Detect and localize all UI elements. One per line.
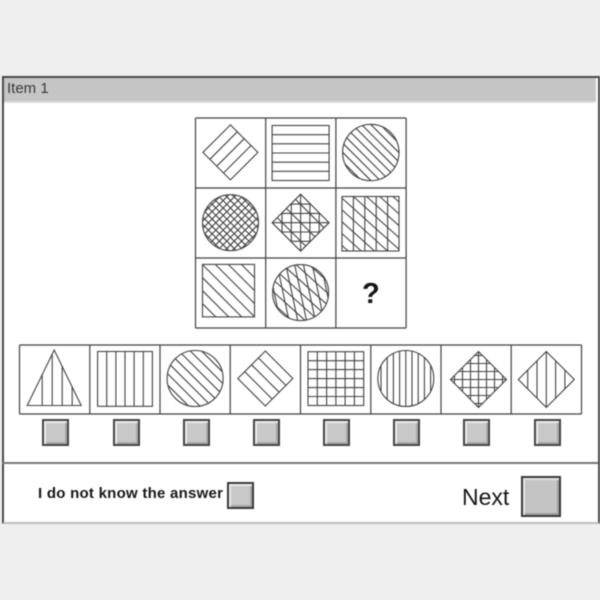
svg-text:?: ? (362, 278, 380, 310)
